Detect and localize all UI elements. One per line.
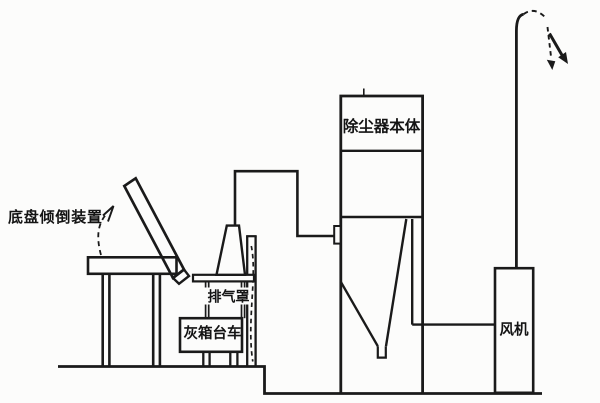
hopper	[341, 219, 407, 358]
inlet-flange	[334, 226, 340, 244]
tipping-platform	[124, 178, 189, 283]
tipping-platform-body	[124, 178, 184, 278]
hopper-right-slope	[386, 219, 406, 346]
exhaust-arrow-dashed-head	[547, 60, 556, 70]
hopper-spout	[378, 346, 386, 357]
stack-top-dashed-arc	[524, 11, 547, 18]
exhaust-arrow-solid	[550, 34, 569, 65]
hood-funnel	[217, 226, 246, 275]
label-fan: 风机	[500, 321, 529, 339]
diagram-canvas: 底盘倾倒装置 排气罩 灰箱台车	[0, 0, 600, 403]
tipping-stand	[88, 257, 177, 366]
exhaust-duct	[235, 171, 335, 236]
exhaust-arrow-dashed-line	[548, 27, 552, 59]
label-dust-collector: 除尘器本体	[343, 117, 421, 136]
diagram-page: 底盘倾倒装置 排气罩 灰箱台车	[0, 0, 600, 403]
dust-collector-shell	[341, 96, 423, 393]
guide-dashed-path	[251, 246, 253, 362]
exhaust-stack	[516, 14, 523, 268]
label-ash-trolley: 灰箱台车	[184, 324, 242, 342]
label-exhaust-hood: 排气罩	[208, 289, 250, 305]
tipping-arrowhead-icon	[103, 206, 114, 222]
hopper-left-slope	[341, 282, 378, 346]
label-tipping-device: 底盘倾倒装置	[8, 208, 103, 226]
ground-line	[58, 367, 542, 394]
